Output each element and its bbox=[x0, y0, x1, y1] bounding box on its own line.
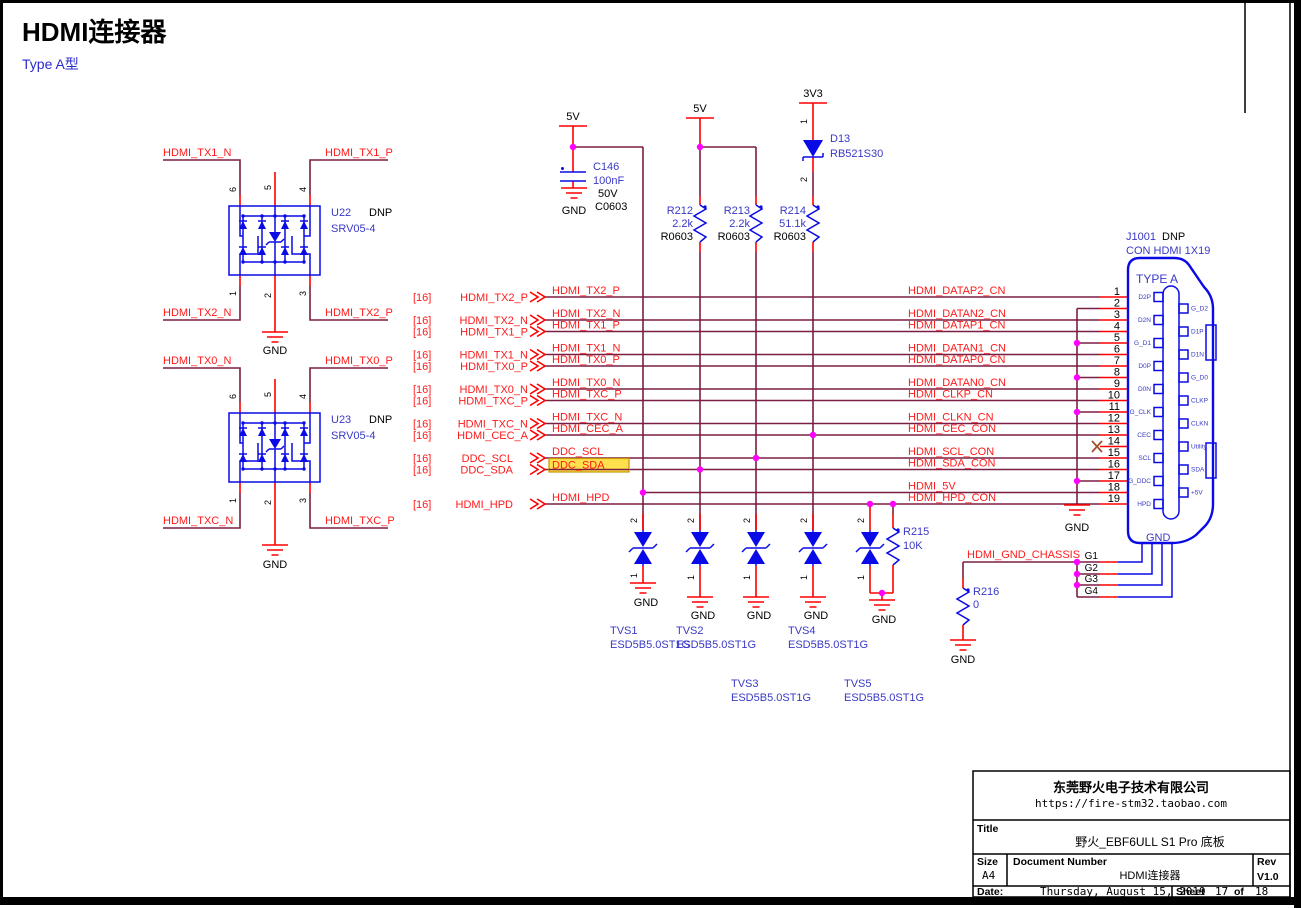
offpage-sheetref: [16] bbox=[413, 430, 431, 442]
company-url: https://fire-stm32.taobao.com bbox=[1035, 797, 1227, 810]
ref-des: J1001 bbox=[1126, 231, 1156, 243]
offpage-name: HDMI_TX2_N bbox=[460, 315, 529, 327]
net-label: HDMI_DATAP0_CN bbox=[908, 354, 1005, 366]
net-label: HDMI_CLKN_CN bbox=[908, 412, 994, 424]
net-label: HDMI_CEC_A bbox=[552, 423, 624, 435]
ref-des: TVS2 bbox=[676, 625, 704, 637]
svg-text:1: 1 bbox=[856, 575, 866, 580]
offpage-name: HDMI_TX1_P bbox=[460, 327, 528, 339]
offpage-sheetref: [16] bbox=[413, 384, 431, 396]
ref-des: R213 bbox=[724, 205, 750, 217]
size-value: A4 bbox=[982, 869, 996, 882]
ref-des: C146 bbox=[593, 161, 619, 173]
ref-des: TVS1 bbox=[610, 625, 638, 637]
connector-left-pads bbox=[1154, 293, 1163, 509]
title-label: Title bbox=[977, 823, 999, 835]
offpage-arrows bbox=[530, 292, 545, 509]
net-label: HDMI_TX1_N bbox=[552, 343, 621, 355]
svg-text:1: 1 bbox=[629, 573, 639, 578]
svg-text:1: 1 bbox=[799, 575, 809, 580]
offpage-name: HDMI_TX0_N bbox=[460, 384, 529, 396]
svg-text:D0P: D0P bbox=[1138, 363, 1151, 370]
pin-number: 4 bbox=[298, 187, 308, 192]
gnd-label: GND bbox=[263, 345, 288, 357]
svg-text:4: 4 bbox=[1114, 321, 1120, 333]
offpage-sheetref: [16] bbox=[413, 327, 431, 339]
svg-text:SCL: SCL bbox=[1138, 455, 1151, 462]
svg-text:18: 18 bbox=[1108, 482, 1120, 494]
company-name: 东莞野火电子技术有限公司 bbox=[1053, 780, 1209, 795]
svg-text:D1P: D1P bbox=[1191, 329, 1204, 336]
offpage-sheetref: [16] bbox=[413, 315, 431, 327]
part-number: ESD5B5.0ST1G bbox=[788, 639, 868, 651]
offpage-sheetref: [16] bbox=[413, 361, 431, 373]
part-number: SRV05-4 bbox=[331, 223, 375, 235]
svg-text:8: 8 bbox=[1114, 367, 1120, 379]
component-value: 0 bbox=[973, 599, 979, 611]
svg-text:2: 2 bbox=[856, 518, 866, 523]
connector-type-label: TYPE A bbox=[1136, 272, 1178, 286]
net-label: HDMI_GND_CHASSIS bbox=[967, 549, 1080, 561]
doc-title: 野火_EBF6ULL S1 Pro 底板 bbox=[1075, 834, 1225, 849]
svg-text:G_D2: G_D2 bbox=[1191, 306, 1208, 313]
pin-number: 2 bbox=[263, 293, 273, 298]
svg-text:D2P: D2P bbox=[1138, 294, 1151, 301]
footprint: R0603 bbox=[774, 231, 806, 243]
net-label: HDMI_SCL_CON bbox=[908, 446, 994, 458]
docnum-value: HDMI连接器 bbox=[1119, 869, 1180, 882]
ref-des: U23 bbox=[331, 414, 351, 426]
offpage-sheetref: [16] bbox=[413, 350, 431, 362]
component-value: 10K bbox=[903, 540, 923, 552]
offpage-name: HDMI_TX1_N bbox=[460, 350, 529, 362]
rev-value: V1.0 bbox=[1257, 871, 1279, 883]
schematic-sheet: HDMI连接器 Type A型 bbox=[0, 0, 1301, 908]
net-label: HDMI_TX1_P bbox=[552, 320, 620, 332]
net-label: HDMI_TXC_P bbox=[552, 389, 622, 401]
svg-text:13: 13 bbox=[1108, 424, 1120, 436]
pin-number: 2 bbox=[263, 500, 273, 505]
tvs-diodes bbox=[629, 530, 884, 566]
component-value: 2.2k bbox=[729, 218, 750, 230]
net-label: HDMI_SDA_CON bbox=[908, 458, 995, 470]
ref-des: R215 bbox=[903, 526, 929, 538]
svg-text:9: 9 bbox=[1114, 378, 1120, 390]
gnd-label: GND bbox=[804, 610, 829, 622]
gnd-label: GND bbox=[263, 559, 288, 571]
connector-gnd-pin-labels: G1 G2 G3 G4 bbox=[1085, 551, 1099, 597]
net-label: HDMI_TX1_N bbox=[163, 147, 232, 159]
power-label-3v3: 3V3 bbox=[803, 88, 823, 100]
offpage-name: HDMI_TX2_P bbox=[460, 292, 528, 304]
net-label: HDMI_TX2_P bbox=[325, 307, 393, 319]
ref-des: D13 bbox=[830, 133, 850, 145]
junction-dots bbox=[570, 144, 1080, 596]
svg-text:G_D1: G_D1 bbox=[1134, 340, 1151, 347]
pin-number: 6 bbox=[228, 394, 238, 399]
power-label-5v: 5V bbox=[566, 111, 580, 123]
footprint: C0603 bbox=[595, 201, 627, 213]
footprint: R0603 bbox=[718, 231, 750, 243]
component-value: 2.2k bbox=[672, 218, 693, 230]
tvs-pin-numbers: 2 2 2 2 2 1 1 1 1 1 bbox=[629, 518, 866, 580]
footprint: R0603 bbox=[661, 231, 693, 243]
page-frame bbox=[0, 0, 1301, 908]
sheet-of-label: of bbox=[1234, 886, 1244, 898]
offpage-name: HDMI_TXC_N bbox=[458, 419, 528, 431]
offpage-name: HDMI_TXC_P bbox=[458, 396, 528, 408]
net-label: HDMI_TX2_N bbox=[163, 307, 232, 319]
offpage-sheetref: [16] bbox=[413, 499, 431, 511]
ref-des: TVS3 bbox=[731, 678, 759, 690]
svg-text:14: 14 bbox=[1108, 436, 1120, 448]
pin-number: 1 bbox=[228, 291, 238, 296]
svg-text:10: 10 bbox=[1108, 390, 1120, 402]
net-label: HDMI_CLKP_CN bbox=[908, 389, 993, 401]
component-value: 100nF bbox=[593, 175, 624, 187]
part-number: ESD5B5.0ST1G bbox=[844, 692, 924, 704]
component-u22-srv05 bbox=[229, 206, 320, 275]
svg-text:17: 17 bbox=[1108, 470, 1120, 482]
pin-number: 3 bbox=[298, 291, 308, 296]
net-label: HDMI_TX1_P bbox=[325, 147, 393, 159]
net-label: DDC_SCL bbox=[552, 446, 603, 458]
pin-number: 6 bbox=[228, 187, 238, 192]
svg-text:Utility: Utility bbox=[1191, 444, 1208, 451]
ref-des: R214 bbox=[780, 205, 806, 217]
connector-gnd-label: GND bbox=[1146, 532, 1171, 544]
connector-pad-labels: D2P D2N G_D1 D0P D0N G_CLK CEC SCL G_DDC… bbox=[1128, 294, 1208, 508]
svg-text:+5V: +5V bbox=[1191, 490, 1203, 497]
svg-text:2: 2 bbox=[686, 518, 696, 523]
ref-des: R212 bbox=[667, 205, 693, 217]
offpage-sheetref: [16] bbox=[413, 419, 431, 431]
svg-text:D1N: D1N bbox=[1191, 352, 1204, 359]
ref-des: TVS4 bbox=[788, 625, 816, 637]
rev-label: Rev bbox=[1257, 856, 1276, 868]
part-number: CON HDMI 1X19 bbox=[1126, 245, 1210, 257]
ref-des: TVS5 bbox=[844, 678, 872, 690]
svg-text:7: 7 bbox=[1114, 355, 1120, 367]
svg-text:1: 1 bbox=[1114, 286, 1120, 298]
svg-text:CEC: CEC bbox=[1137, 432, 1151, 439]
part-number: ESD5B5.0ST1G bbox=[676, 639, 756, 651]
net-label: HDMI_TX2_N bbox=[552, 308, 621, 320]
svg-text:15: 15 bbox=[1108, 447, 1120, 459]
svg-text:19: 19 bbox=[1108, 493, 1120, 505]
pin-number: 1 bbox=[228, 498, 238, 503]
gnd-label: GND bbox=[1065, 522, 1090, 534]
offpage-name: HDMI_TX0_P bbox=[460, 361, 528, 373]
pin-number: 2 bbox=[799, 177, 809, 182]
svg-text:3: 3 bbox=[1114, 309, 1120, 321]
svg-text:D2N: D2N bbox=[1138, 317, 1151, 324]
gnd-label: GND bbox=[872, 614, 897, 626]
pin-number: 5 bbox=[263, 185, 273, 190]
offpage-sheetref: [16] bbox=[413, 453, 431, 465]
component-u23-srv05 bbox=[229, 413, 320, 482]
gnd-label: GND bbox=[691, 610, 716, 622]
svg-text:2: 2 bbox=[1114, 298, 1120, 310]
offpage-name: HDMI_HPD bbox=[456, 499, 514, 511]
net-label: HDMI_DATAP2_CN bbox=[908, 285, 1005, 297]
connector-pin-numbers: 1 2 3 4 5 6 7 8 9 10 11 12 13 14 15 16 1… bbox=[1108, 286, 1120, 505]
sheet-total: 18 bbox=[1255, 885, 1268, 898]
svg-text:2: 2 bbox=[742, 518, 752, 523]
svg-text:2: 2 bbox=[629, 518, 639, 523]
offpage-name: DDC_SCL bbox=[462, 453, 513, 465]
part-number: SRV05-4 bbox=[331, 430, 375, 442]
gnd-label: GND bbox=[951, 654, 976, 666]
svg-text:16: 16 bbox=[1108, 459, 1120, 471]
docnum-label: Document Number bbox=[1013, 856, 1107, 868]
dnp-flag: DNP bbox=[1162, 231, 1185, 243]
net-label: HDMI_DATAN2_CN bbox=[908, 308, 1006, 320]
net-label: HDMI_TX0_P bbox=[552, 354, 620, 366]
gnd-label: GND bbox=[634, 597, 659, 609]
net-label: HDMI_DATAP1_CN bbox=[908, 320, 1005, 332]
svg-text:12: 12 bbox=[1108, 413, 1120, 425]
sheet-number: 17 bbox=[1215, 885, 1228, 898]
net-label-highlighted: DDC_SDA bbox=[552, 460, 605, 472]
component-value: 51.1k bbox=[779, 218, 806, 230]
sheet-label: Sheet bbox=[1176, 886, 1205, 898]
part-number: ESD5B5.0ST1G bbox=[731, 692, 811, 704]
page-subtitle: Type A型 bbox=[22, 56, 79, 72]
net-label: HDMI_TX0_P bbox=[325, 355, 393, 367]
date-label: Date: bbox=[977, 886, 1003, 898]
title-block: 东莞野火电子技术有限公司 https://fire-stm32.taobao.c… bbox=[973, 771, 1290, 898]
svg-text:G3: G3 bbox=[1085, 574, 1099, 585]
pin-number: 1 bbox=[799, 119, 809, 124]
offpage-name: DDC_SDA bbox=[460, 465, 513, 477]
svg-text:G_CLK: G_CLK bbox=[1130, 409, 1152, 416]
svg-text:HPD: HPD bbox=[1137, 501, 1151, 508]
pin-number: 4 bbox=[298, 394, 308, 399]
ref-des: R216 bbox=[973, 586, 999, 598]
ref-des: U22 bbox=[331, 207, 351, 219]
gnd-label: GND bbox=[562, 205, 587, 217]
svg-text:1: 1 bbox=[742, 575, 752, 580]
svg-text:G1: G1 bbox=[1085, 551, 1099, 562]
offpage-sheetref: [16] bbox=[413, 292, 431, 304]
offpage-sheetref: [16] bbox=[413, 396, 431, 408]
gnd-label: GND bbox=[747, 610, 772, 622]
svg-text:2: 2 bbox=[799, 518, 809, 523]
net-label: HDMI_DATAN0_CN bbox=[908, 377, 1006, 389]
svg-text:CLKP: CLKP bbox=[1191, 398, 1208, 405]
component-rating: 50V bbox=[598, 188, 618, 200]
part-number: RB521S30 bbox=[830, 148, 883, 160]
power-label-5v: 5V bbox=[693, 103, 707, 115]
svg-text:G2: G2 bbox=[1085, 563, 1099, 574]
offpage-name: HDMI_CEC_A bbox=[457, 430, 529, 442]
pin-number: 3 bbox=[298, 498, 308, 503]
page-title: HDMI连接器 bbox=[22, 17, 167, 47]
net-label: HDMI_TXC_P bbox=[325, 515, 395, 527]
svg-text:1: 1 bbox=[686, 575, 696, 580]
dnp-flag: DNP bbox=[369, 207, 392, 219]
pin-number: 5 bbox=[263, 392, 273, 397]
svg-text:D0N: D0N bbox=[1138, 386, 1151, 393]
svg-text:G_D0: G_D0 bbox=[1191, 375, 1208, 382]
net-label: HDMI_TXC_N bbox=[552, 412, 622, 424]
dnp-flag: DNP bbox=[369, 414, 392, 426]
svg-text:11: 11 bbox=[1109, 401, 1120, 413]
size-label: Size bbox=[977, 856, 998, 868]
net-label: HDMI_DATAN1_CN bbox=[908, 343, 1006, 355]
svg-text:G_DDC: G_DDC bbox=[1128, 478, 1151, 485]
net-label: HDMI_CEC_CON bbox=[908, 423, 996, 435]
svg-text:6: 6 bbox=[1114, 344, 1120, 356]
net-label: HDMI_TX0_N bbox=[552, 377, 621, 389]
net-label: HDMI_HPD_CON bbox=[908, 492, 996, 504]
net-label: HDMI_TXC_N bbox=[163, 515, 233, 527]
net-label: HDMI_TX0_N bbox=[163, 355, 232, 367]
net-label: HDMI_TX2_P bbox=[552, 285, 620, 297]
net-label: HDMI_HPD bbox=[552, 492, 610, 504]
svg-text:5: 5 bbox=[1114, 332, 1120, 344]
connector-right-pads bbox=[1179, 304, 1188, 497]
net-label: HDMI_5V bbox=[908, 481, 956, 493]
offpage-sheetref: [16] bbox=[413, 465, 431, 477]
svg-text:G4: G4 bbox=[1085, 586, 1099, 597]
svg-text:SDA: SDA bbox=[1191, 467, 1205, 474]
svg-text:CLKN: CLKN bbox=[1191, 421, 1209, 428]
